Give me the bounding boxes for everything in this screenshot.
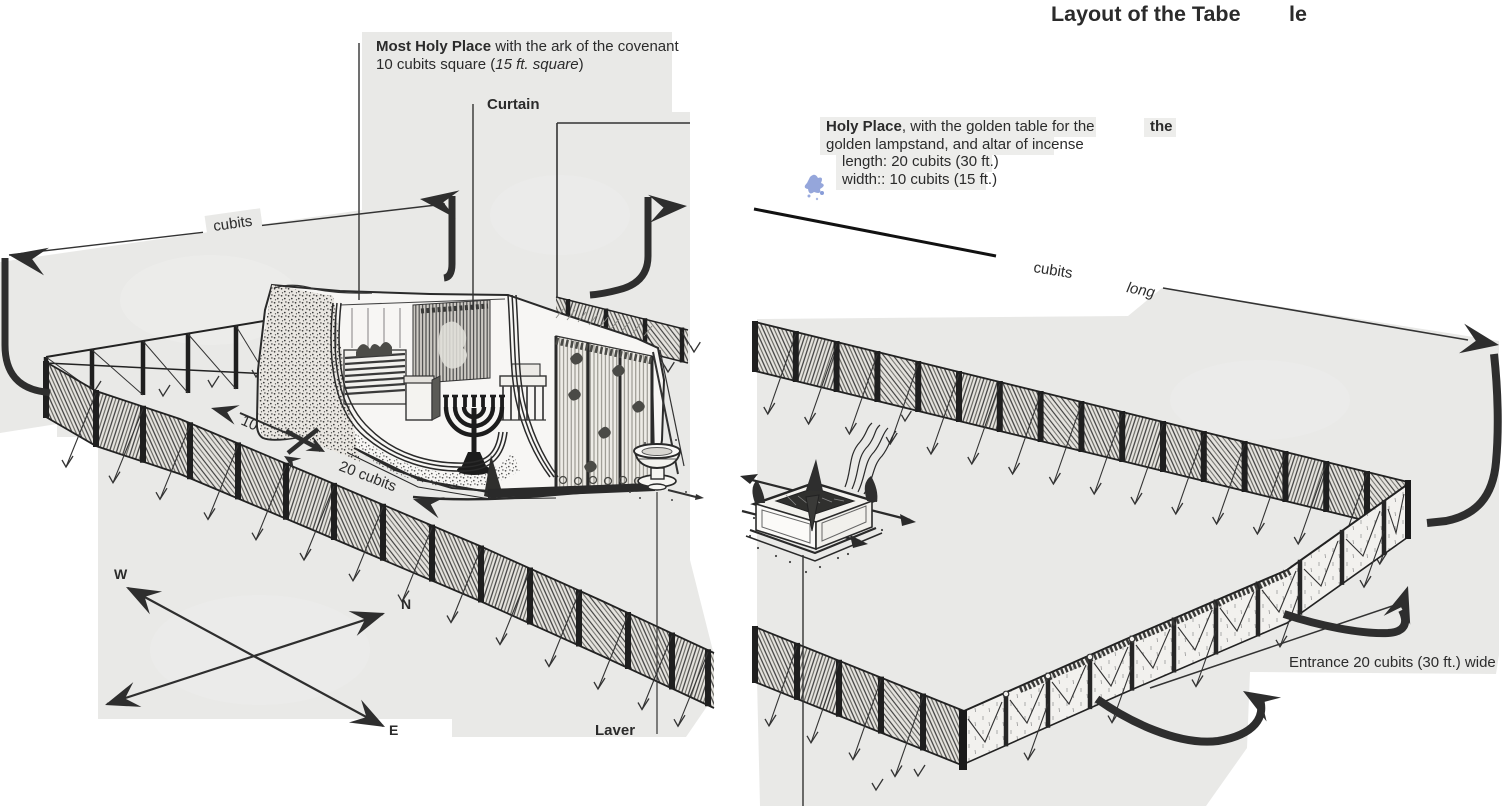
svg-text:Entrance 20 cubits (30 ft.) wi: Entrance 20 cubits (30 ft.) wide: [1289, 654, 1496, 671]
svg-text:length: 20 cubits (30 ft.): length: 20 cubits (30 ft.): [842, 153, 999, 170]
svg-text:Most Holy Place with the ark o: Most Holy Place with the ark of the cove…: [376, 38, 679, 55]
svg-text:Curtain: Curtain: [487, 96, 540, 113]
svg-text:W: W: [114, 566, 128, 582]
svg-text:golden lampstand, and altar of: golden lampstand, and altar of incense: [826, 136, 1084, 153]
svg-text:E: E: [389, 722, 398, 738]
svg-text:N: N: [401, 596, 411, 612]
svg-text:width:: 10 cubits (15 ft.): width:: 10 cubits (15 ft.): [841, 171, 997, 188]
svg-text:Laver: Laver: [595, 722, 635, 739]
svg-text:Layout of the Tabe: Layout of the Tabe: [1051, 2, 1241, 26]
svg-text:le: le: [1289, 2, 1307, 26]
svg-text:10 cubits square (15 ft. squar: 10 cubits square (15 ft. square): [376, 56, 584, 73]
svg-text:the: the: [1150, 118, 1173, 135]
svg-text:Holy Place, with the golden ta: Holy Place, with the golden table for th…: [826, 118, 1095, 135]
